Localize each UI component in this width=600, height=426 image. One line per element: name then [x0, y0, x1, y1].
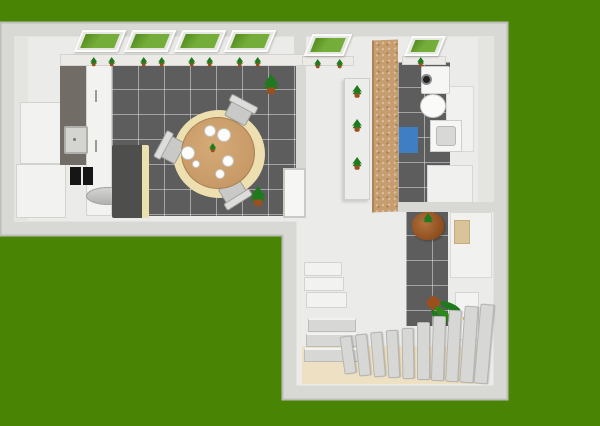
plate [217, 128, 231, 142]
sill-plant-icon [314, 59, 321, 68]
kitchen-cabinet-block [20, 102, 64, 164]
plant-pot-icon [211, 149, 215, 152]
tray [454, 220, 470, 244]
bathroom-divider-wall [398, 202, 494, 212]
bathroom-right-wall-face [478, 36, 494, 202]
storage-shelf-box [304, 262, 342, 276]
sink-basin [436, 126, 456, 146]
plate [222, 155, 234, 167]
plate [204, 125, 216, 137]
window-sill [60, 54, 312, 66]
sill-plant-icon [188, 57, 195, 66]
floor-plan-3d-view[interactable] [0, 0, 600, 426]
storage-shelf-box [306, 292, 347, 308]
window [74, 30, 127, 52]
shelf-plant-icon [352, 85, 362, 98]
cabinet-handle [95, 90, 97, 102]
toilet [420, 94, 446, 118]
cooktop-burner [83, 167, 93, 185]
sofa-bench [112, 145, 149, 218]
window [174, 30, 227, 52]
window [124, 30, 177, 52]
sill-plant-icon [336, 59, 343, 68]
kitchen-sink [64, 126, 88, 154]
sill-plant-icon [140, 57, 147, 66]
sill-plant-icon [90, 57, 97, 66]
plate [192, 160, 200, 168]
cork-partition-wall [372, 40, 398, 213]
floor-plant-icon [263, 74, 279, 94]
cooktop-burner [70, 167, 81, 185]
stair-step [402, 328, 415, 379]
cabinet-handle [95, 140, 97, 152]
sill-plant-icon [417, 57, 424, 66]
sill-plant-icon [236, 57, 243, 66]
window-glass [80, 34, 120, 48]
sill-plant-icon [108, 57, 115, 66]
sill-plant-icon [254, 57, 261, 66]
plate [181, 146, 195, 160]
window-sill [302, 56, 354, 66]
plate [215, 169, 225, 179]
table-plant-icon [209, 143, 216, 152]
sill-plant-icon [158, 57, 165, 66]
stair-step [308, 318, 356, 332]
bathroom-cabinet [427, 165, 473, 207]
window [224, 30, 277, 52]
stair-step [431, 316, 446, 381]
kitchen-cabinet-block [16, 164, 66, 218]
washing-machine-door-icon [421, 74, 432, 85]
shelf-plant-icon [352, 157, 362, 170]
entry-door [283, 168, 306, 218]
stair-step [386, 330, 400, 379]
faucet-dot [73, 138, 76, 141]
sill-plant-icon [206, 57, 213, 66]
storage-shelf-box [304, 277, 344, 291]
shelf-plant-icon [352, 119, 362, 132]
floor-plant-icon [250, 186, 266, 206]
hall-plant-icon [423, 213, 433, 226]
bath-mat [399, 127, 418, 153]
stair-step [417, 322, 430, 380]
